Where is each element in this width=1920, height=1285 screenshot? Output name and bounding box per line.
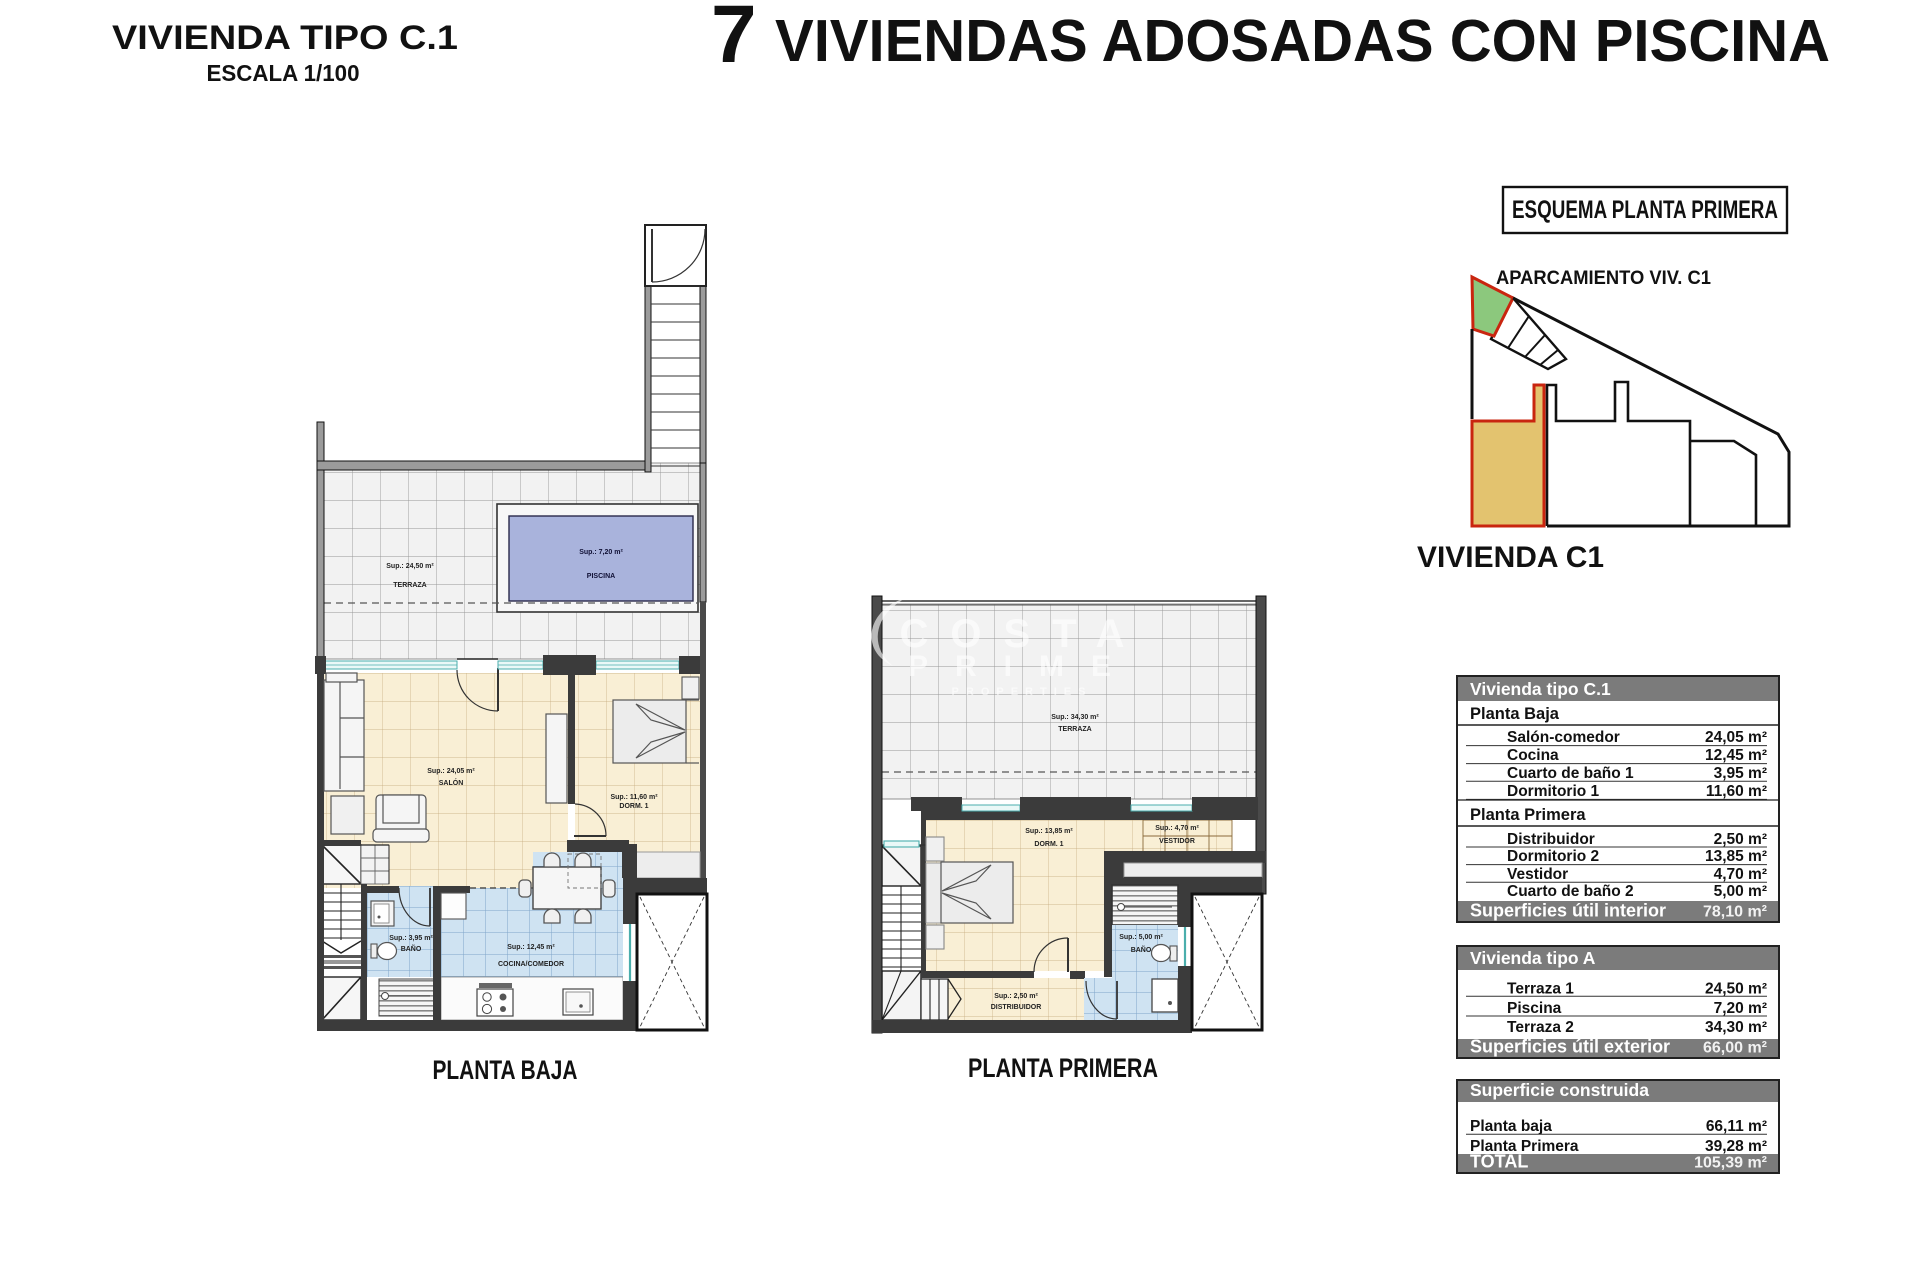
svg-text:78,10 m²: 78,10 m²: [1703, 904, 1767, 921]
svg-text:Distribuidor: Distribuidor: [1507, 831, 1595, 848]
svg-text:5,00 m²: 5,00 m²: [1714, 883, 1767, 900]
svg-text:Sup.: 4,70 m²: Sup.: 4,70 m²: [1155, 825, 1199, 832]
svg-text:Salón-comedor: Salón-comedor: [1507, 729, 1620, 746]
svg-text:Sup.: 3,95 m²: Sup.: 3,95 m²: [389, 935, 433, 942]
svg-text:Cuarto de baño 2: Cuarto de baño 2: [1507, 883, 1634, 900]
svg-text:7,20 m²: 7,20 m²: [1714, 1000, 1767, 1017]
svg-text:13,85 m²: 13,85 m²: [1705, 848, 1767, 865]
svg-text:TERRAZA: TERRAZA: [393, 582, 426, 589]
svg-text:TOTAL: TOTAL: [1470, 1152, 1528, 1172]
svg-text:COCINA/COMEDOR: COCINA/COMEDOR: [498, 961, 564, 968]
svg-text:PRIME: PRIME: [908, 650, 1138, 683]
svg-text:Vivienda tipo A: Vivienda tipo A: [1470, 948, 1596, 968]
svg-text:PLANTA PRIMERA: PLANTA PRIMERA: [968, 1053, 1158, 1083]
svg-text:12,45 m²: 12,45 m²: [1705, 747, 1767, 764]
svg-text:VESTIDOR: VESTIDOR: [1159, 838, 1195, 845]
svg-text:Sup.: 7,20 m²: Sup.: 7,20 m²: [579, 549, 623, 556]
svg-text:Sup.: 24,05 m²: Sup.: 24,05 m²: [427, 768, 475, 775]
svg-text:Terraza 1: Terraza 1: [1507, 981, 1574, 998]
svg-text:105,39 m²: 105,39 m²: [1694, 1155, 1767, 1172]
svg-text:34,30 m²: 34,30 m²: [1705, 1019, 1767, 1036]
svg-text:Sup.: 5,00 m²: Sup.: 5,00 m²: [1119, 934, 1163, 941]
svg-text:Piscina: Piscina: [1507, 1000, 1562, 1017]
svg-text:7: 7: [711, 0, 757, 80]
svg-text:3,95 m²: 3,95 m²: [1714, 765, 1767, 782]
svg-text:PLANTA BAJA: PLANTA BAJA: [433, 1055, 578, 1085]
svg-text:Dormitorio 1: Dormitorio 1: [1507, 783, 1600, 800]
svg-text:Vivienda tipo C.1: Vivienda tipo C.1: [1470, 679, 1611, 699]
svg-text:TERRAZA: TERRAZA: [1058, 726, 1091, 733]
svg-text:Cuarto de baño 1: Cuarto de baño 1: [1507, 765, 1634, 782]
svg-text:Planta Primera: Planta Primera: [1470, 806, 1586, 824]
svg-text:APARCAMIENTO VIV. C1: APARCAMIENTO VIV. C1: [1496, 268, 1711, 289]
svg-text:Sup.: 34,30 m²: Sup.: 34,30 m²: [1051, 714, 1099, 721]
svg-text:11,60 m²: 11,60 m²: [1706, 783, 1767, 800]
svg-text:ESQUEMA PLANTA PRIMERA: ESQUEMA PLANTA PRIMERA: [1512, 196, 1778, 224]
svg-text:Sup.: 12,45 m²: Sup.: 12,45 m²: [507, 944, 555, 951]
svg-text:Dormitorio 2: Dormitorio 2: [1507, 848, 1599, 865]
svg-text:ESCALA 1/100: ESCALA 1/100: [207, 60, 360, 86]
svg-text:VIVIENDA TIPO C.1: VIVIENDA TIPO C.1: [112, 19, 458, 57]
svg-text:Planta baja: Planta baja: [1470, 1118, 1552, 1135]
svg-text:39,28 m²: 39,28 m²: [1705, 1138, 1767, 1155]
svg-text:Sup.: 2,50 m²: Sup.: 2,50 m²: [994, 993, 1038, 1000]
svg-text:PISCINA: PISCINA: [587, 573, 615, 580]
svg-text:DISTRIBUIDOR: DISTRIBUIDOR: [991, 1004, 1042, 1011]
svg-text:BAÑO: BAÑO: [401, 944, 422, 953]
svg-text:Terraza 2: Terraza 2: [1507, 1019, 1574, 1036]
svg-text:66,11 m²: 66,11 m²: [1706, 1118, 1767, 1135]
svg-text:Superficie construida: Superficie construida: [1470, 1080, 1649, 1100]
svg-text:4,70 m²: 4,70 m²: [1714, 866, 1767, 883]
svg-text:Sup.: 13,85 m²: Sup.: 13,85 m²: [1025, 828, 1073, 835]
svg-text:Planta Baja: Planta Baja: [1470, 705, 1560, 723]
svg-text:PROPERTIES: PROPERTIES: [952, 686, 1093, 698]
svg-text:Cocina: Cocina: [1507, 747, 1559, 764]
svg-text:DORM. 1: DORM. 1: [1034, 841, 1063, 848]
svg-text:24,05 m²: 24,05 m²: [1705, 729, 1767, 746]
svg-text:DORM. 1: DORM. 1: [619, 803, 648, 810]
svg-text:VIVIENDA C1: VIVIENDA C1: [1417, 541, 1604, 574]
svg-text:Superficies útil exterior: Superficies útil exterior: [1470, 1037, 1670, 1057]
svg-text:Vestidor: Vestidor: [1507, 866, 1568, 883]
svg-text:VIVIENDAS ADOSADAS CON PISCINA: VIVIENDAS ADOSADAS CON PISCINA: [775, 8, 1830, 74]
svg-text:Sup.: 11,60 m²: Sup.: 11,60 m²: [610, 794, 658, 801]
svg-text:BAÑO: BAÑO: [1131, 945, 1152, 954]
svg-text:66,00 m²: 66,00 m²: [1703, 1040, 1767, 1057]
svg-text:Superficies útil interior: Superficies útil interior: [1470, 901, 1666, 921]
svg-text:Sup.: 24,50 m²: Sup.: 24,50 m²: [386, 563, 434, 570]
svg-text:SALÓN: SALÓN: [439, 778, 464, 787]
svg-text:2,50 m²: 2,50 m²: [1714, 831, 1767, 848]
svg-text:24,50 m²: 24,50 m²: [1705, 981, 1767, 998]
